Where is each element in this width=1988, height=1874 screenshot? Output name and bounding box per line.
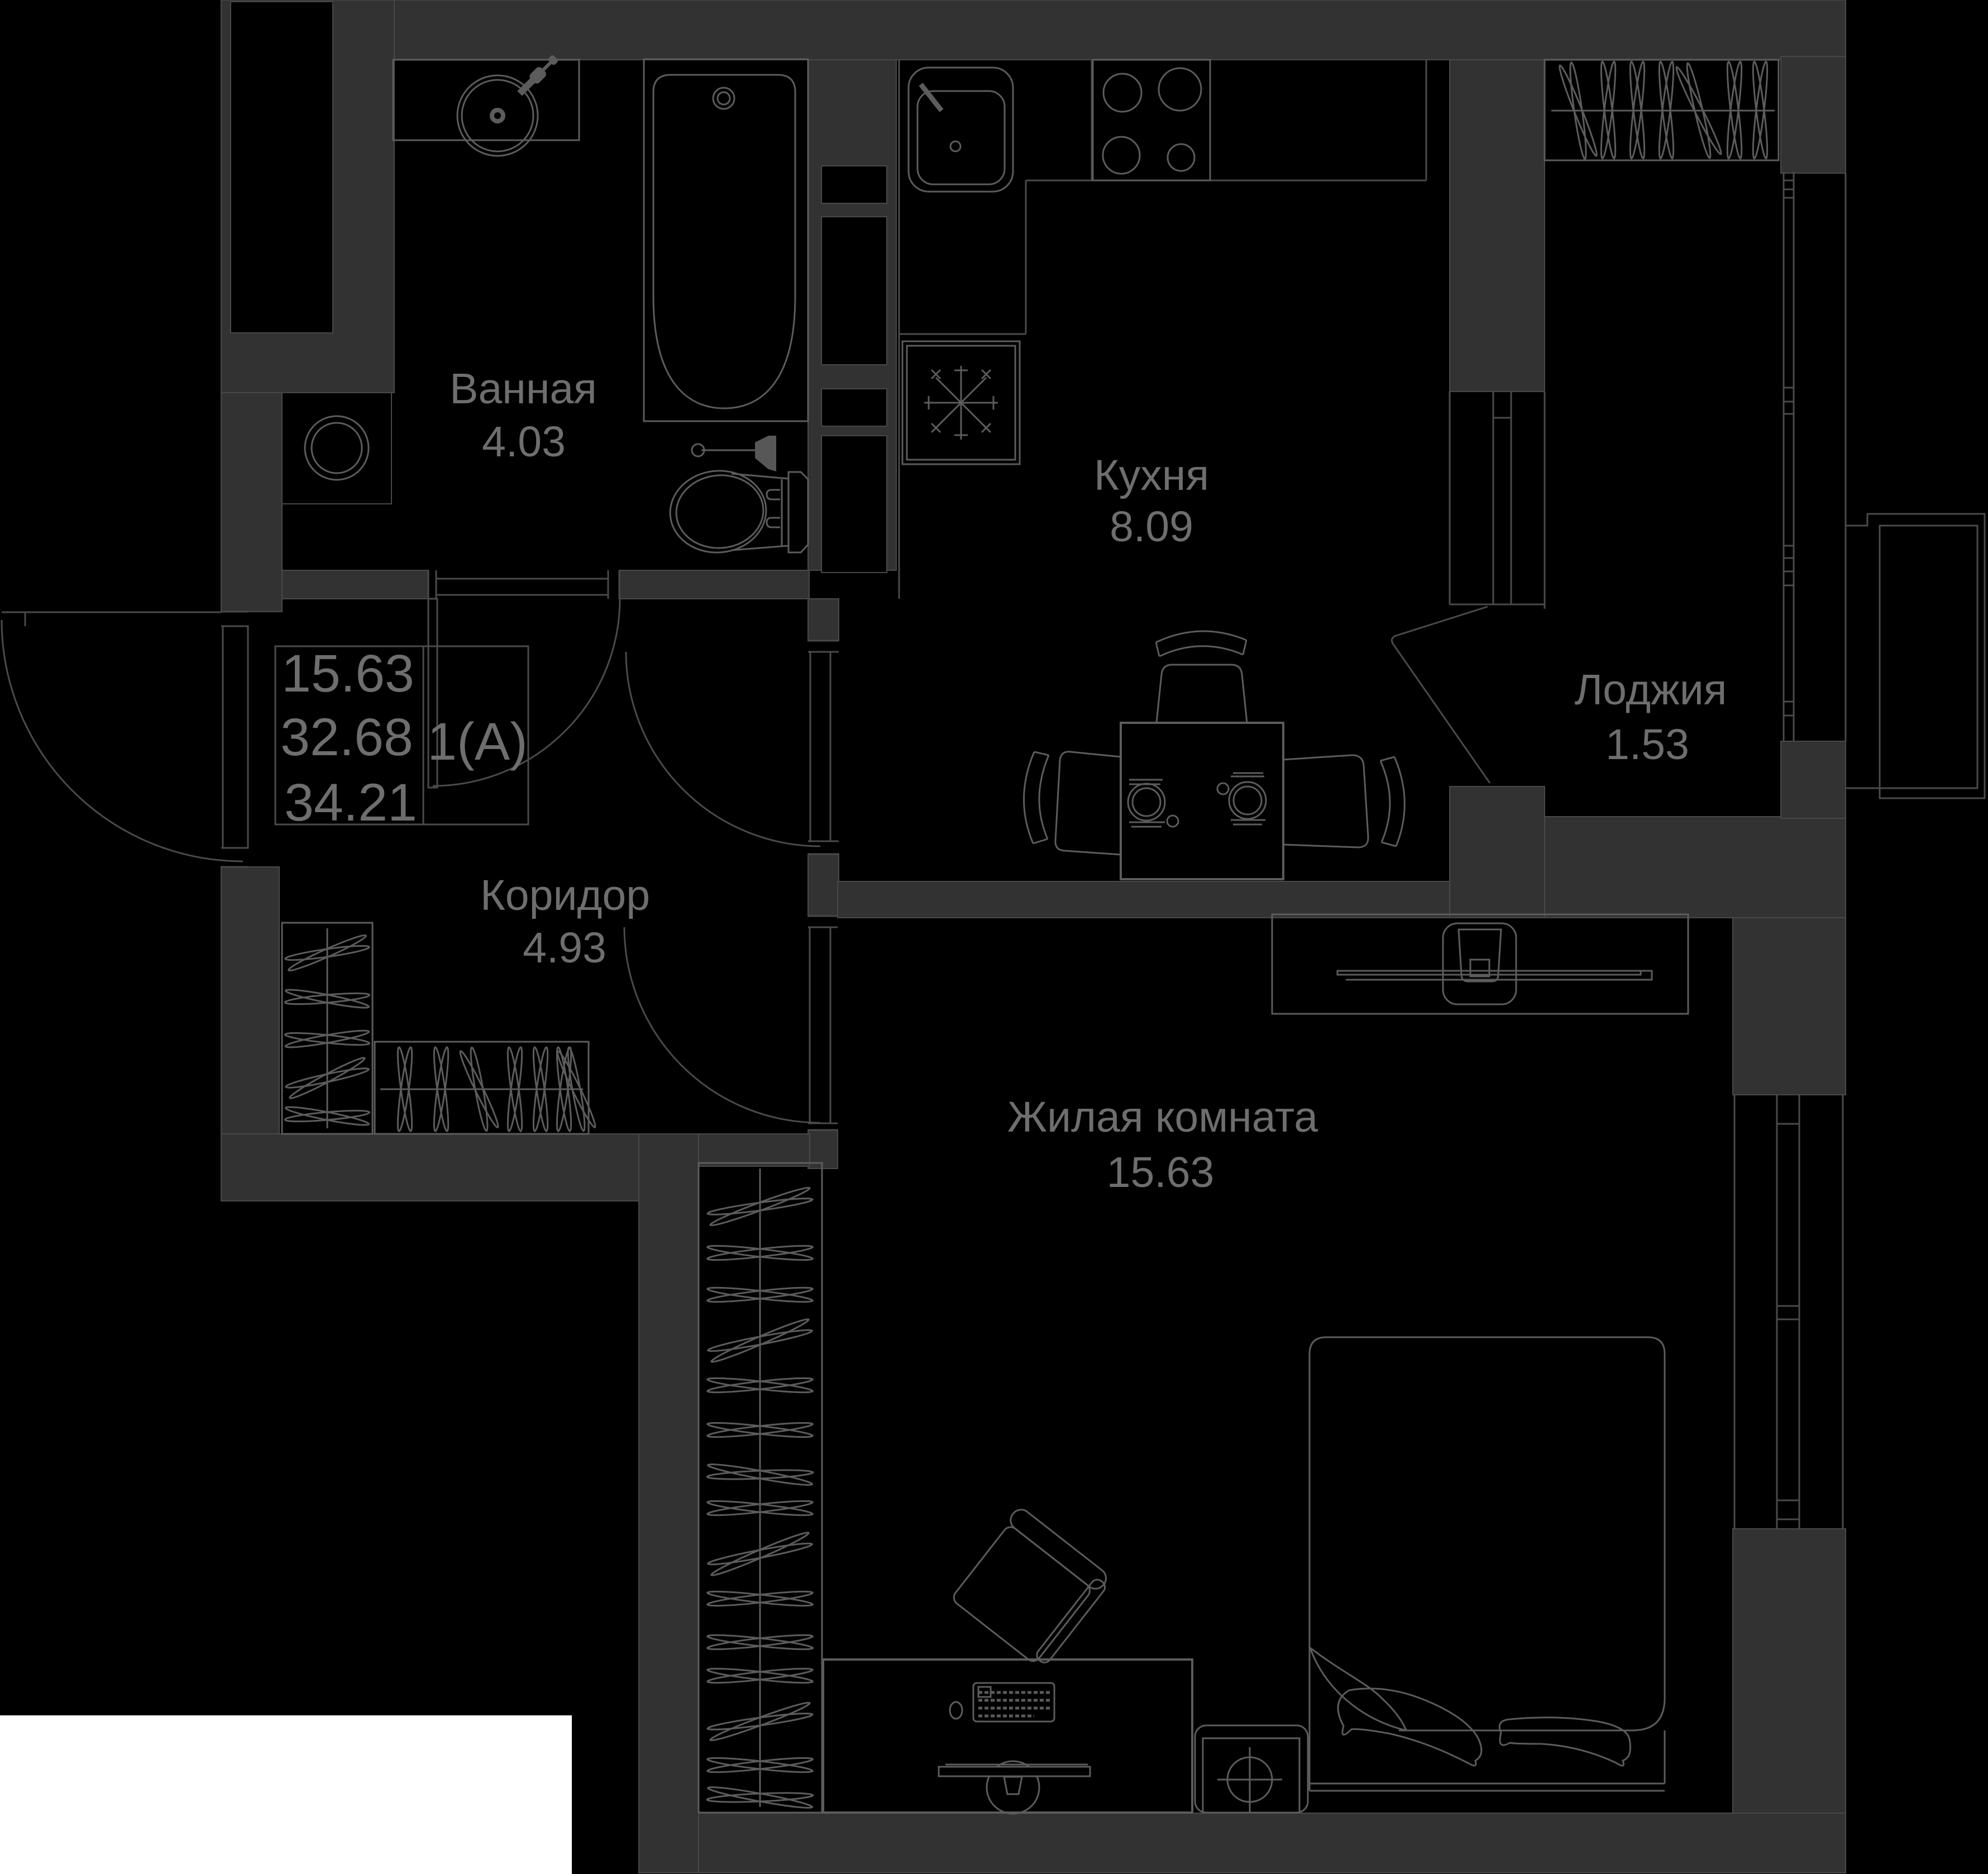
svg-text:Кухня: Кухня (1094, 451, 1209, 499)
svg-text:Коридор: Коридор (480, 871, 650, 919)
svg-text:4.93: 4.93 (523, 924, 606, 972)
svg-text:Лоджия: Лоджия (1575, 666, 1727, 714)
svg-text:34.21: 34.21 (284, 773, 417, 832)
svg-text:8.09: 8.09 (1110, 503, 1193, 551)
svg-text:Жилая комната: Жилая комната (1007, 1093, 1318, 1141)
svg-text:15.63: 15.63 (1107, 1148, 1215, 1196)
svg-text:4.03: 4.03 (482, 418, 566, 466)
svg-text:1.53: 1.53 (1605, 721, 1689, 769)
svg-text:32.68: 32.68 (280, 708, 413, 767)
svg-text:Ванная: Ванная (450, 365, 597, 413)
svg-text:15.63: 15.63 (281, 644, 414, 703)
svg-text:1(А): 1(А) (427, 712, 527, 771)
